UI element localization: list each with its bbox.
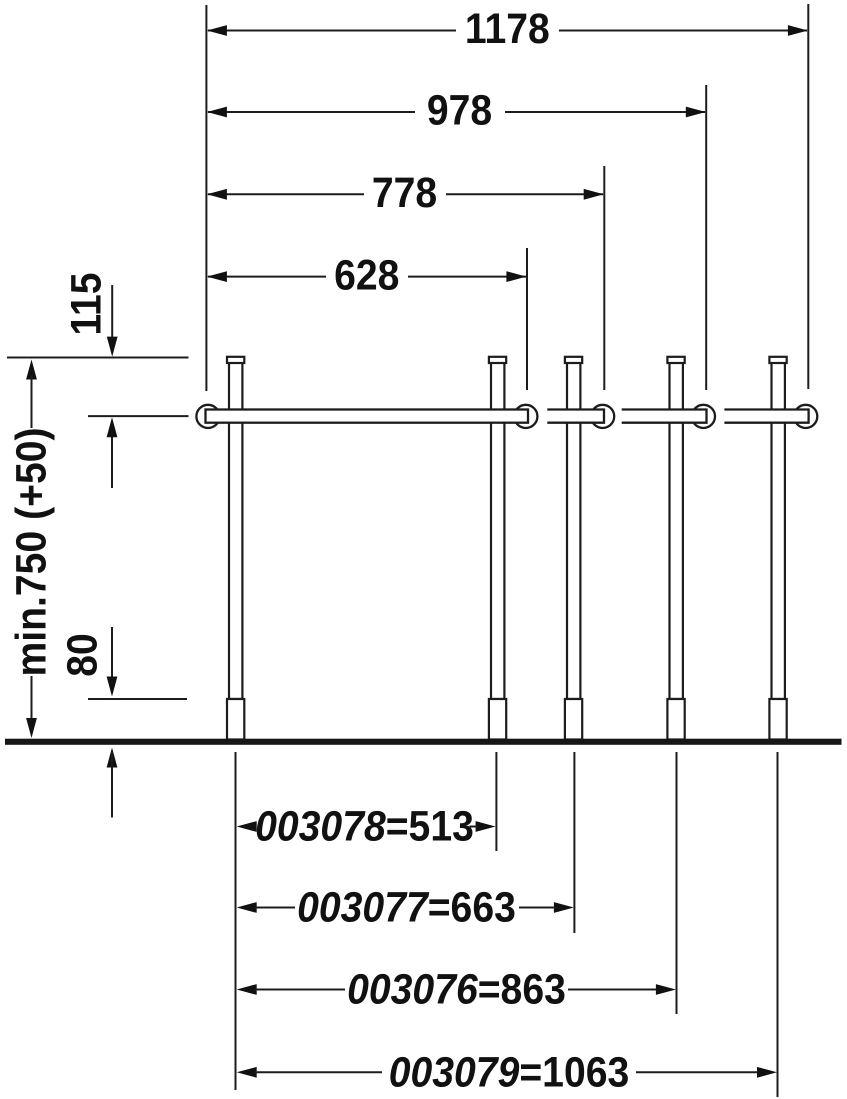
svg-text:80: 80 [58,633,106,677]
svg-text:003076=863: 003076=863 [347,965,566,1013]
svg-text:min.750 (+50): min.750 (+50) [7,427,55,676]
svg-text:1178: 1178 [465,4,550,52]
svg-text:978: 978 [427,86,492,134]
svg-text:115: 115 [62,272,110,335]
svg-text:003077=663: 003077=663 [297,883,516,931]
svg-text:003078=513: 003078=513 [255,802,474,850]
svg-text:003079=1063: 003079=1063 [389,1048,629,1096]
svg-text:778: 778 [372,168,437,216]
svg-text:628: 628 [334,251,399,299]
